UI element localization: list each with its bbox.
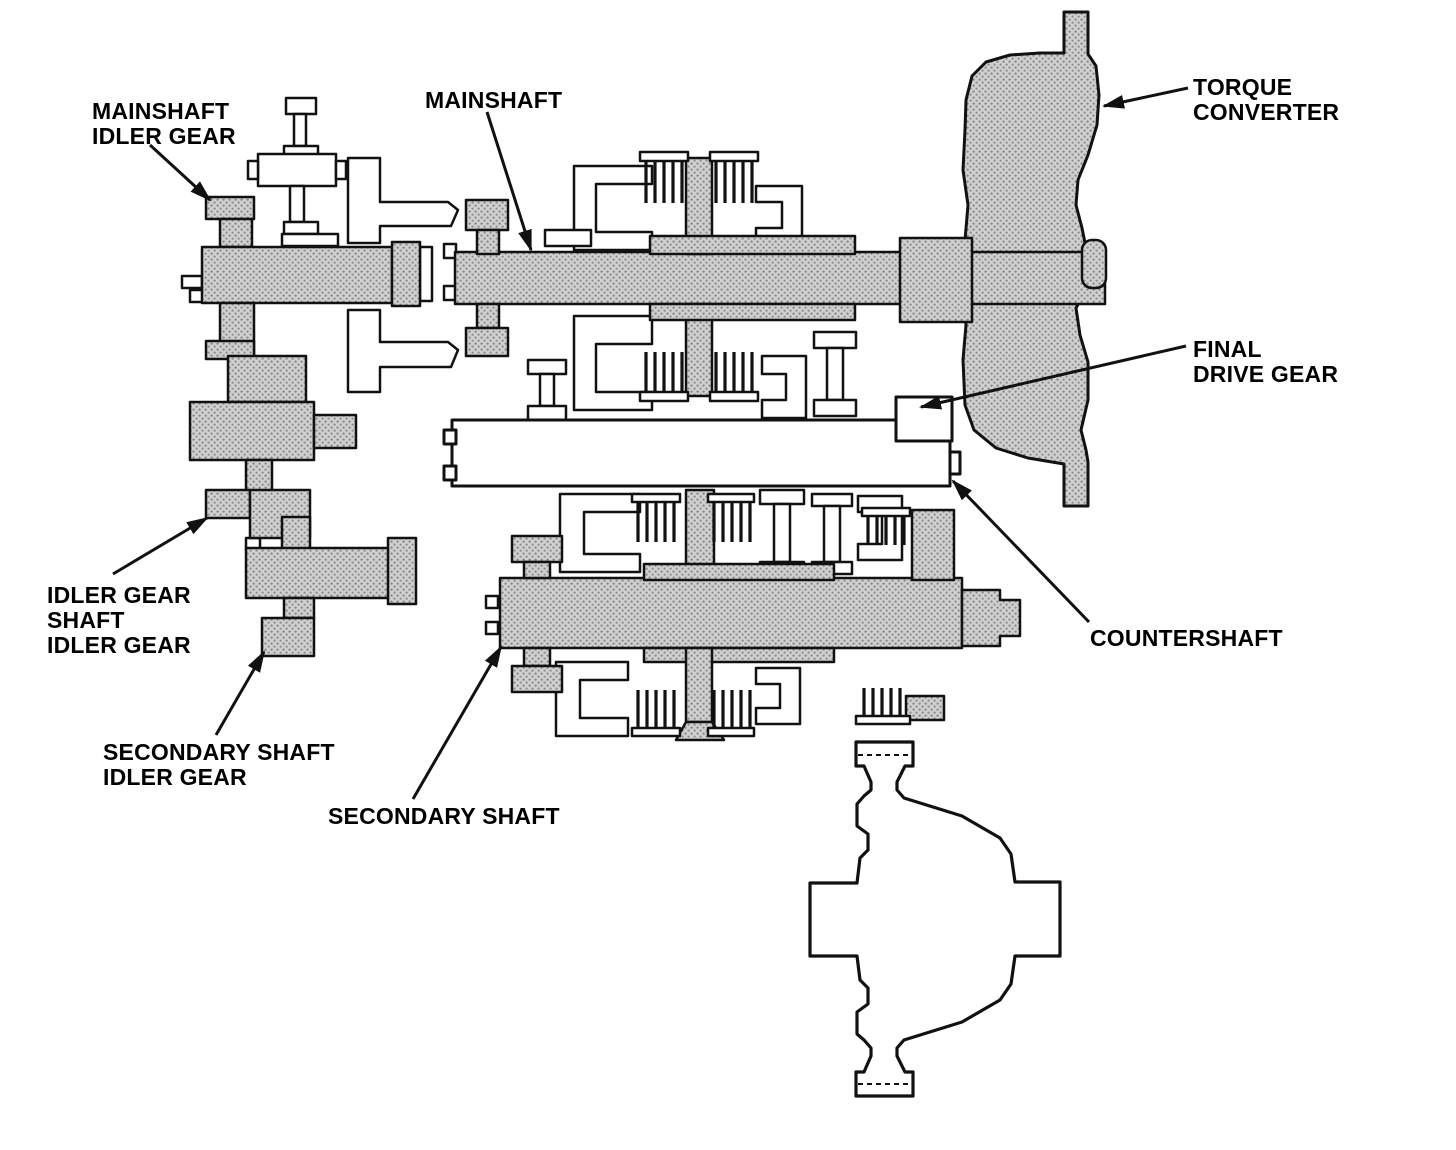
transmission-cutaway-figure: MAINSHAFT IDLER GEAR MAINSHAFT TORQUE CO… (0, 0, 1456, 1150)
countershaft-left-step-b (444, 466, 456, 480)
clutch-cap (862, 508, 910, 516)
secondary-idler-gear-stem (284, 598, 314, 618)
sec-left-step-a (486, 596, 498, 608)
clutch-cap (856, 716, 910, 724)
label-line: IDLER GEAR (47, 633, 191, 658)
left-idler-assembly (182, 98, 458, 656)
label-mainshaft: MAINSHAFT (425, 88, 562, 113)
final-drive-gear-collar (896, 397, 952, 441)
idler-gear-shaft-bar (202, 247, 392, 303)
label-line: COUNTERSHAFT (1090, 626, 1283, 651)
mainshaft-idler-gear-hub (220, 219, 252, 247)
label-line: SECONDARY SHAFT (103, 740, 335, 765)
label-line: CONVERTER (1193, 100, 1339, 125)
label-idler-gear-shaft: IDLER GEAR SHAFT IDLER GEAR (47, 583, 191, 657)
label-line: MAINSHAFT (425, 88, 562, 113)
idler-mid-base (282, 234, 338, 246)
label-secondary-shaft-idler-gear: SECONDARY SHAFT IDLER GEAR (103, 740, 335, 790)
secondary-shaft-bar (500, 578, 962, 648)
sec-bearing-flange-bot (512, 666, 562, 692)
clutch-cap (640, 392, 688, 401)
secondary-idler-shaft-end (388, 538, 416, 604)
label-mainshaft-idler-gear: MAINSHAFT IDLER GEAR (92, 99, 236, 149)
sec-drum-bot-left (556, 662, 628, 736)
idler-bracket-upper (348, 158, 458, 243)
countershaft-end-step (950, 452, 960, 474)
main-bearing-flange-bot (466, 328, 508, 356)
sec-left-step-b (486, 622, 498, 634)
main-bearing-stem-top (477, 230, 499, 254)
sec-drum-top-left (560, 494, 640, 572)
label-countershaft: COUNTERSHAFT (1090, 626, 1283, 651)
sec-bearing-flange-top (512, 536, 562, 562)
clutch-cap (640, 152, 688, 161)
sec-hub-band-bot (644, 648, 834, 662)
idler-mid-stem (290, 186, 304, 222)
label-line: SHAFT (47, 608, 191, 633)
main-bearing-flange-top (466, 200, 508, 230)
arrow-idler-gear-shaft (113, 518, 207, 574)
secondary-idler-shaft-bar (246, 548, 404, 598)
label-secondary-shaft: SECONDARY SHAFT (328, 804, 560, 829)
idler-small-flange (206, 490, 250, 518)
main-right-block (900, 238, 972, 322)
mainshaft-idler-gear-flange (206, 197, 254, 219)
idler-left-step-a (182, 276, 202, 288)
idler-column-low (246, 460, 272, 492)
main-ibeam-tall (814, 332, 856, 416)
transmission-diagram (0, 0, 1456, 1150)
clutch-cap (632, 494, 680, 502)
idler-roller-nub-right (336, 161, 346, 179)
clutch-cap (710, 152, 758, 161)
label-torque-converter: TORQUE CONVERTER (1193, 75, 1339, 125)
clutch-cap (708, 728, 754, 736)
arrow-torque-converter (1104, 88, 1188, 106)
arrow-secondary-shaft-idler-gear (216, 652, 264, 735)
mainshaft-end-cap (1082, 240, 1106, 288)
sec-end-cap (962, 590, 1020, 646)
label-line: DRIVE GEAR (1193, 362, 1338, 387)
countershaft-left-step-a (444, 430, 456, 444)
arrow-secondary-shaft (413, 647, 501, 799)
label-line: TORQUE (1193, 75, 1339, 100)
clutch-cap (632, 728, 680, 736)
main-hub-band-bot (650, 304, 855, 320)
main-hub-band-top (650, 236, 855, 254)
arrow-mainshaft-idler-gear (150, 145, 210, 200)
idler-neck (282, 517, 310, 549)
differential-outline (810, 742, 1060, 1096)
main-bearing-stem-bot (477, 304, 499, 328)
sec-right-block-bot (906, 696, 944, 720)
secondary-shaft-assembly (486, 490, 1020, 740)
idler-gear-block-ext (314, 415, 356, 448)
main-ibeam-small (528, 360, 566, 420)
idler-gear-shaft-end (392, 242, 420, 306)
countershaft-bar (452, 420, 950, 486)
main-drum-bot-right (762, 356, 806, 418)
main-step-bar (545, 230, 591, 246)
label-line: SECONDARY SHAFT (328, 804, 560, 829)
idler-gear-block (190, 402, 314, 460)
label-line: FINAL (1193, 337, 1338, 362)
idler-top-shaft-cap (286, 98, 316, 114)
mainshaft-bar (455, 252, 1105, 304)
clutch-cap (710, 392, 758, 401)
idler-top-shaft-stem (294, 114, 306, 146)
sec-bearing-stem-bot (524, 648, 550, 666)
label-line: IDLER GEAR (92, 124, 236, 149)
sec-column-down (686, 648, 712, 722)
sec-hub-band-top (644, 564, 834, 580)
sec-ibeam-b (812, 494, 852, 574)
idler-roller (258, 154, 336, 186)
clutch-cap (708, 494, 754, 502)
sec-right-block-top (912, 510, 954, 580)
idler-column-mid (228, 356, 306, 402)
countershaft-group (444, 397, 960, 486)
idler-mid-flange (284, 222, 318, 234)
label-line: IDLER GEAR (47, 583, 191, 608)
sec-bearing-stem-top (524, 562, 550, 578)
label-line: MAINSHAFT (92, 99, 236, 124)
sec-drum-bot-right (756, 668, 800, 724)
idler-bracket-lower (348, 310, 458, 392)
idler-roller-nub-left (248, 161, 258, 179)
secondary-shaft-idler-gear-part (262, 618, 314, 656)
label-final-drive-gear: FINAL DRIVE GEAR (1193, 337, 1338, 387)
idler-shaft-white-step (420, 247, 432, 301)
label-line: IDLER GEAR (103, 765, 335, 790)
